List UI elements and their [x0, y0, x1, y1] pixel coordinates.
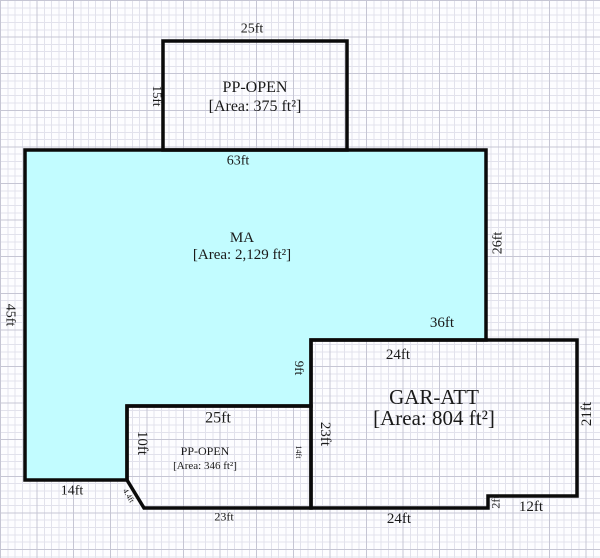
room-label-ma: MA [Area: 2,129 ft²]	[193, 230, 291, 264]
dim-ppb-right: 14ft	[294, 446, 302, 459]
room-label-gar-att: GAR-ATT [Area: 804 ft²]	[373, 387, 495, 429]
dim-ppb-left: 10ft	[133, 431, 149, 455]
dim-ma-bottom-left: 14ft	[61, 485, 84, 500]
dim-ma-left: 45ft	[2, 304, 17, 327]
dim-ppb-top: 25ft	[205, 411, 231, 428]
dim-gar-step: 2ft	[490, 495, 503, 508]
room-name-gar-att: GAR-ATT	[373, 387, 495, 408]
dim-gar-top: 36ft	[430, 316, 454, 332]
room-area-gar-att: [Area: 804 ft²]	[373, 408, 495, 429]
dim-pp-top-left: 15ft	[150, 86, 164, 107]
dim-ma-top: 63ft	[227, 155, 250, 170]
room-name-pp-open-bottom: PP-OPEN	[173, 444, 237, 459]
room-shape-ma[interactable]	[25, 150, 486, 480]
room-area-pp-open-bottom: [Area: 346 ft²]	[173, 459, 237, 474]
room-name-ma: MA	[193, 230, 291, 247]
dim-gar-bottom: 24ft	[387, 512, 411, 528]
room-area-ma: [Area: 2,129 ft²]	[193, 247, 291, 264]
room-name-pp-open-top: PP-OPEN	[209, 78, 302, 97]
dim-gar-left: 23ft	[316, 422, 332, 446]
dim-ma-right: 26ft	[492, 232, 507, 255]
room-label-pp-open-bottom: PP-OPEN [Area: 346 ft²]	[173, 444, 237, 474]
dim-ppb-bottom: 23ft	[214, 511, 233, 524]
dim-ma-bottom-right: 24ft	[386, 348, 410, 364]
dim-pp-top-width: 25ft	[241, 23, 264, 38]
dim-gar-bottom-right: 12ft	[519, 500, 543, 516]
dim-ma-step: 9ft	[292, 361, 306, 375]
dim-gar-right: 21ft	[580, 402, 596, 426]
grid-paper: PP-OPEN [Area: 375 ft²] MA [Area: 2,129 …	[0, 0, 600, 558]
room-area-pp-open-top: [Area: 375 ft²]	[209, 97, 302, 116]
room-label-pp-open-top: PP-OPEN [Area: 375 ft²]	[209, 78, 302, 116]
